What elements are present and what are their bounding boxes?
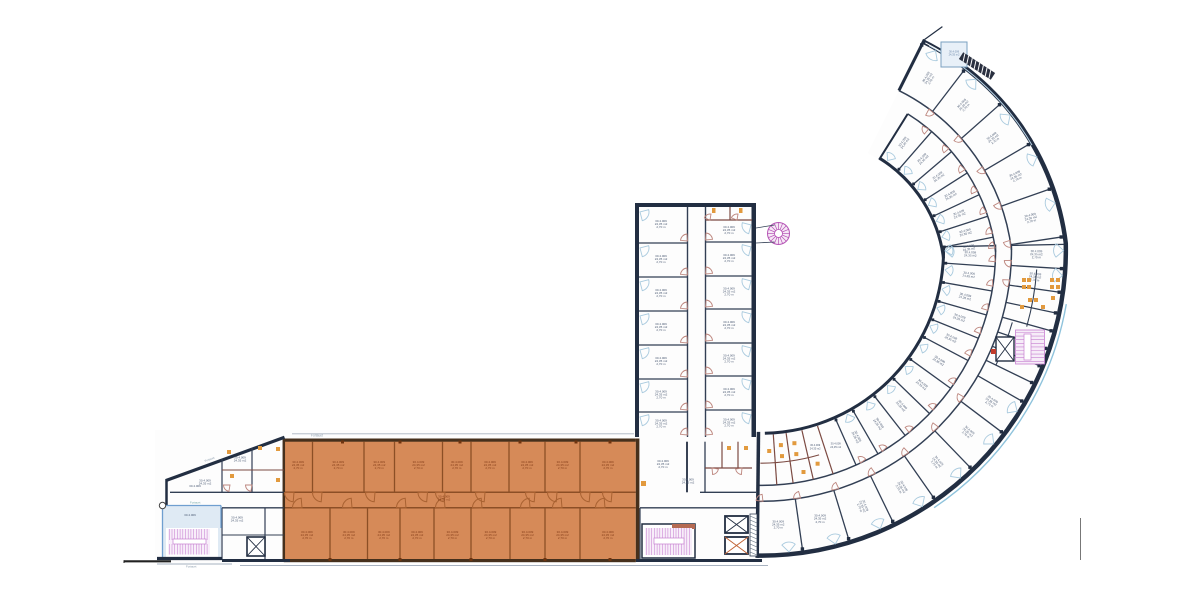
svg-text:2,70 m: 2,70 m <box>724 259 734 263</box>
svg-text:2,70 m: 2,70 m <box>294 466 304 470</box>
svg-text:2,70 m: 2,70 m <box>656 225 666 229</box>
svg-text:2,70 m: 2,70 m <box>658 465 668 469</box>
svg-text:24,35 m2: 24,35 m2 <box>830 445 841 449</box>
svg-text:2,70 m: 2,70 m <box>724 326 734 330</box>
svg-text:2,70 m: 2,70 m <box>485 466 495 470</box>
svg-text:2,70 m: 2,70 m <box>724 424 734 428</box>
svg-text:24,35 m2: 24,35 m2 <box>231 519 244 523</box>
svg-text:2,70 m: 2,70 m <box>724 231 734 235</box>
svg-text:2,70 m: 2,70 m <box>452 466 462 470</box>
svg-text:24,35 m2: 24,35 m2 <box>949 53 960 57</box>
svg-text:2,70 m: 2,70 m <box>656 260 666 264</box>
svg-text:2,70 m: 2,70 m <box>558 466 568 470</box>
svg-text:2,70 m: 2,70 m <box>412 536 422 540</box>
svg-text:24,35 m2: 24,35 m2 <box>234 459 247 463</box>
svg-text:2,70 m: 2,70 m <box>656 328 666 332</box>
svg-text:2,70 m: 2,70 m <box>486 536 496 540</box>
svg-text:Fortauet: Fortauet <box>190 501 201 505</box>
svg-text:2,70 m: 2,70 m <box>375 466 385 470</box>
svg-text:2,70 m: 2,70 m <box>724 393 734 397</box>
svg-text:30.4.009: 30.4.009 <box>184 513 196 517</box>
svg-text:24,35 m2: 24,35 m2 <box>810 446 821 450</box>
svg-text:24,35 m2: 24,35 m2 <box>199 482 212 486</box>
svg-text:2,70 m: 2,70 m <box>656 425 666 429</box>
svg-text:2,70 m: 2,70 m <box>344 536 354 540</box>
svg-text:2,70 m: 2,70 m <box>656 362 666 366</box>
svg-text:2,70 m: 2,70 m <box>1032 255 1042 259</box>
svg-text:2,70 m: 2,70 m <box>379 536 389 540</box>
svg-text:24,35 m2: 24,35 m2 <box>964 253 977 257</box>
svg-text:2,70 m: 2,70 m <box>774 526 784 530</box>
svg-text:2,70 m: 2,70 m <box>816 520 826 524</box>
svg-text:2,70 m: 2,70 m <box>656 396 666 400</box>
svg-text:2,70 m: 2,70 m <box>448 536 458 540</box>
svg-text:2,70 m: 2,70 m <box>523 536 533 540</box>
svg-text:2,70 m: 2,70 m <box>414 466 424 470</box>
svg-text:Fortauet: Fortauet <box>186 565 197 569</box>
svg-text:2,70 m: 2,70 m <box>522 466 532 470</box>
svg-text:2,70 m: 2,70 m <box>302 536 312 540</box>
svg-text:2,70 m: 2,70 m <box>334 466 344 470</box>
svg-text:24,35 m2: 24,35 m2 <box>682 481 695 485</box>
svg-text:2,70 m: 2,70 m <box>656 294 666 298</box>
svg-text:2,70 m: 2,70 m <box>558 536 568 540</box>
svg-text:2,70 m: 2,70 m <box>724 293 734 297</box>
svg-text:2,70 m: 2,70 m <box>603 466 613 470</box>
svg-text:2,70 m: 2,70 m <box>603 536 613 540</box>
svg-text:2,70 m: 2,70 m <box>724 360 734 364</box>
svg-text:24,35 m2: 24,35 m2 <box>438 498 451 502</box>
